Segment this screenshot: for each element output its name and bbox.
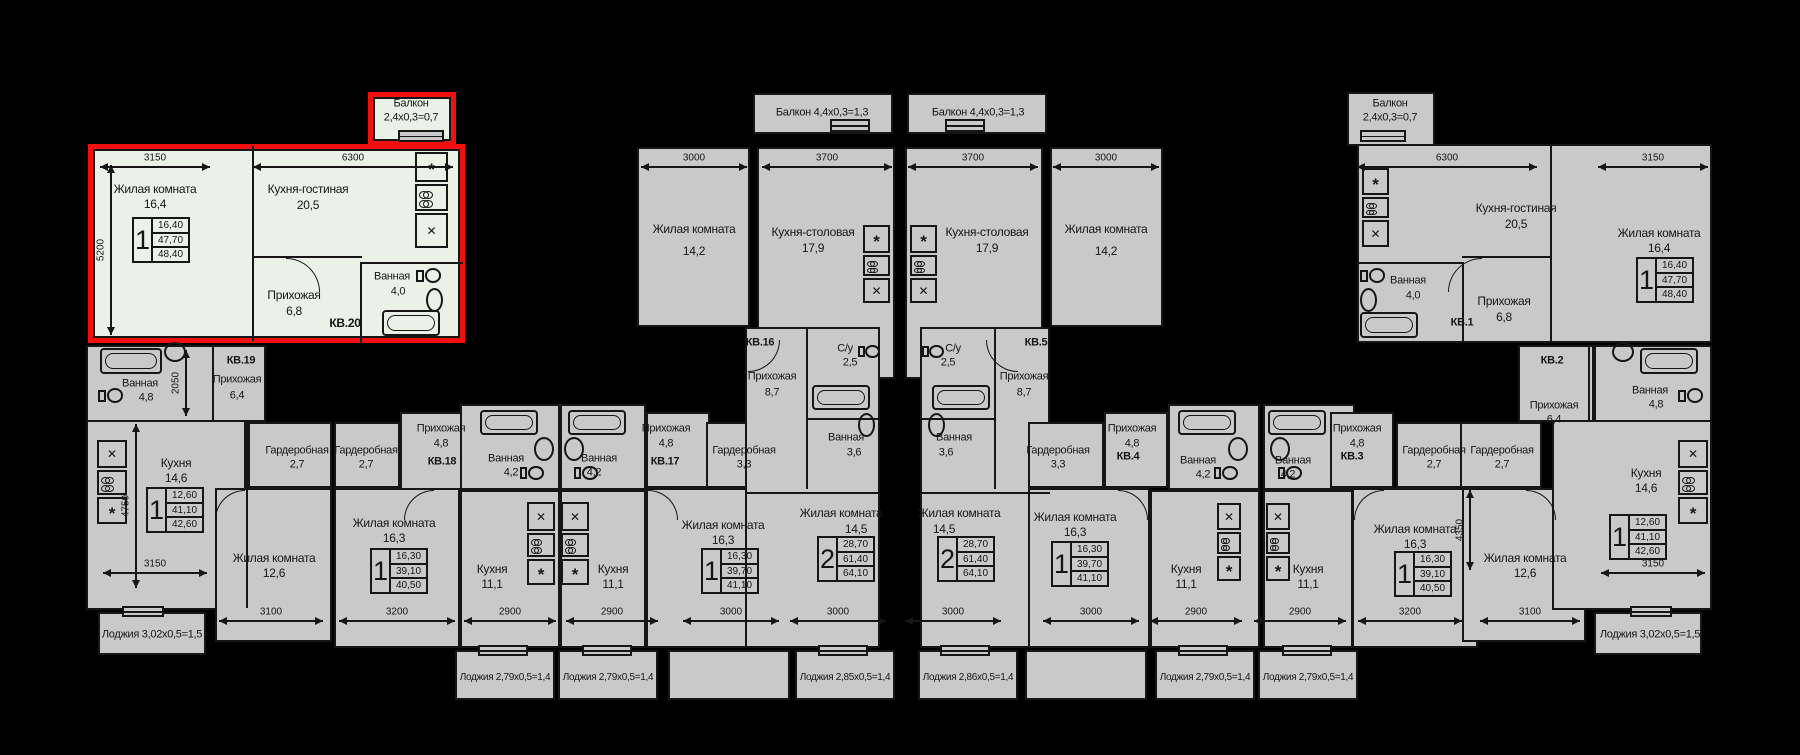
stove-icon xyxy=(561,533,589,557)
dimension-label: 6300 xyxy=(1436,153,1458,164)
toilet-tank xyxy=(1214,467,1221,478)
room-label: Кухня-гостиная xyxy=(1476,202,1557,214)
loggia-label: Лоджия 2,79х0,5=1,4 xyxy=(460,673,551,683)
bathtub-icon xyxy=(812,385,870,410)
room-label: 2,7 xyxy=(1427,460,1441,471)
room-label: 11,1 xyxy=(602,578,623,590)
toilet-tank xyxy=(922,346,929,356)
area-value: 41,10 xyxy=(1072,570,1107,585)
area-value: 41,10 xyxy=(167,502,202,517)
apartment-info-table: 228,7061,4064,10 xyxy=(937,536,995,582)
dimension-line xyxy=(1598,166,1708,168)
dimension-label: 3000 xyxy=(683,153,705,164)
room-label: Ванная xyxy=(828,433,864,444)
floor-plan-canvas: *✕✕*✕*✕**✕*✕✕*✕*✕**✕116,4047,7048,40112,… xyxy=(0,0,1800,755)
entrance-left xyxy=(668,650,790,700)
dimension-line xyxy=(1053,166,1159,168)
dimension-line xyxy=(464,620,556,622)
stove-icon xyxy=(1217,532,1241,554)
area-value: 42,60 xyxy=(1630,543,1665,558)
toilet-bowl xyxy=(1369,268,1386,283)
dimension-line xyxy=(219,620,323,622)
area-rows: 28,7061,4064,10 xyxy=(958,538,993,580)
room-count: 1 xyxy=(1053,543,1072,585)
apartment-number-label[interactable]: КВ.16 xyxy=(746,338,774,349)
room-count: 1 xyxy=(1611,516,1630,558)
dimension-label: 3150 xyxy=(144,559,166,570)
room-count: 2 xyxy=(819,538,838,580)
balcony-label: Балкон xyxy=(1372,99,1407,110)
bathtub-icon xyxy=(382,310,440,336)
washbasin-icon xyxy=(1360,288,1377,312)
toilet-bowl xyxy=(865,345,879,358)
dimension-line xyxy=(103,572,207,574)
room-label: 4,2 xyxy=(1196,470,1210,481)
kv4-kitchen xyxy=(1150,490,1260,648)
room-label: Ванная xyxy=(374,272,410,283)
room-label: Кухня xyxy=(1293,563,1324,575)
apartment-number-label[interactable]: КВ.20 xyxy=(329,317,360,329)
dimension-arrowhead xyxy=(107,165,115,173)
room-label: Кухня xyxy=(598,563,629,575)
room-label: Кухня-столовая xyxy=(946,226,1029,238)
room-label: 3,3 xyxy=(1051,460,1065,471)
wall-line xyxy=(922,492,1050,494)
dimension-line xyxy=(908,166,1038,168)
dimension-line xyxy=(110,165,112,335)
dimension-label: 2900 xyxy=(499,607,521,618)
area-value: 42,60 xyxy=(167,516,202,531)
dimension-line xyxy=(339,620,455,622)
apartment-number-label[interactable]: КВ.17 xyxy=(651,457,679,468)
window-icon xyxy=(830,119,870,132)
dimension-arrowhead xyxy=(650,617,658,625)
area-rows: 16,3039,7041,10 xyxy=(1072,543,1107,585)
dimension-label: 5200 xyxy=(96,239,107,261)
area-value: 47,70 xyxy=(153,232,188,247)
washbasin-icon xyxy=(534,437,554,461)
room-count: 2 xyxy=(939,538,958,580)
dimension-arrowhead xyxy=(445,163,453,171)
window-icon xyxy=(1282,645,1332,656)
loggia-label: Лоджия 2,79х0,5=1,4 xyxy=(1160,673,1251,683)
room-label: 17,9 xyxy=(976,242,998,254)
wall-line xyxy=(252,146,254,341)
toilet-tank xyxy=(858,346,865,356)
toilet-bowl xyxy=(107,388,124,403)
room-label: 6,8 xyxy=(286,305,302,317)
area-rows: 28,7061,4064,10 xyxy=(838,538,873,580)
room-label: Прихожая xyxy=(1000,372,1049,383)
area-rows: 12,6041,1042,60 xyxy=(1630,516,1665,558)
bathtub-icon xyxy=(1268,410,1326,435)
kitchen-sink-icon: ✕ xyxy=(561,502,589,531)
stove-icon xyxy=(1678,470,1708,495)
room-label: 12,6 xyxy=(1514,567,1536,579)
apartment-info-table: 112,6041,1042,60 xyxy=(146,487,204,533)
toilet-icon xyxy=(1360,268,1386,283)
dimension-label: 3700 xyxy=(816,153,838,164)
dimension-label: 4750 xyxy=(121,495,132,517)
wall-line xyxy=(252,256,362,258)
dimension-arrowhead xyxy=(1700,163,1708,171)
area-value: 39,10 xyxy=(391,563,426,578)
dimension-arrowhead xyxy=(107,327,115,335)
stove-burner xyxy=(568,539,576,546)
dimension-line xyxy=(1357,166,1537,168)
wall-line xyxy=(246,422,248,608)
dimension-arrowhead xyxy=(683,617,691,625)
apartment-number-label[interactable]: КВ.19 xyxy=(227,356,255,367)
apartment-info-table: 116,3039,1040,50 xyxy=(1394,551,1452,597)
dimension-arrowhead xyxy=(762,163,770,171)
window-line xyxy=(820,650,866,652)
area-value: 64,10 xyxy=(838,565,873,580)
bathtub-inner xyxy=(387,315,435,331)
kv5-bedroom xyxy=(1050,147,1163,327)
apartment-info-table: 116,3039,7041,10 xyxy=(1051,541,1109,587)
room-label: 6,4 xyxy=(230,391,244,402)
dimension-arrowhead xyxy=(908,163,916,171)
dimension-arrowhead xyxy=(339,617,347,625)
dimension-arrowhead xyxy=(905,617,913,625)
dimension-arrowhead xyxy=(1358,617,1366,625)
dimension-arrowhead xyxy=(1466,490,1474,498)
stove-burner xyxy=(917,268,925,274)
dimension-arrowhead xyxy=(548,617,556,625)
balcony-label: Балкон 4,4х0,3=1,3 xyxy=(776,108,868,119)
stove-icon xyxy=(910,255,937,276)
room-label: Ванная xyxy=(122,379,158,390)
sink-glyph: ✕ xyxy=(1273,511,1283,523)
kitchen-sink-icon: ✕ xyxy=(1678,440,1708,468)
room-label: 4,8 xyxy=(139,393,153,404)
area-rows: 16,4047,7048,40 xyxy=(1657,259,1692,301)
room-label: Кухня xyxy=(161,457,192,469)
dimension-line xyxy=(1150,620,1242,622)
dimension-arrowhead xyxy=(1357,163,1365,171)
fridge-icon: * xyxy=(1362,168,1389,195)
stove-icon xyxy=(415,184,448,211)
room-count: 1 xyxy=(1638,259,1657,301)
room-count: 1 xyxy=(703,550,722,592)
bathtub-inner xyxy=(573,415,621,430)
dimension-arrowhead xyxy=(1043,617,1051,625)
room-label: 16,3 xyxy=(1404,538,1426,550)
window-icon xyxy=(818,645,868,656)
wall-line xyxy=(1550,146,1552,341)
dimension-arrowhead xyxy=(1601,569,1609,577)
sink-glyph: ✕ xyxy=(570,511,580,523)
kitchen-sink-icon: ✕ xyxy=(415,213,448,248)
room-label: 11,1 xyxy=(481,578,502,590)
dimension-label: 3700 xyxy=(962,153,984,164)
window-line xyxy=(124,611,162,613)
dimension-arrowhead xyxy=(103,569,111,577)
dimension-arrowhead xyxy=(132,580,140,588)
area-value: 41,10 xyxy=(1630,529,1665,544)
room-label: 14,2 xyxy=(1095,245,1117,257)
area-value: 12,60 xyxy=(167,489,202,502)
room-label: Прихожая xyxy=(642,424,691,435)
area-value: 41,10 xyxy=(722,577,757,592)
area-value: 47,70 xyxy=(1657,272,1692,287)
sink-glyph: ✕ xyxy=(1224,511,1234,523)
wall-line xyxy=(360,262,463,264)
window-line xyxy=(584,650,630,652)
apartment-info-table: 116,3039,1040,50 xyxy=(370,548,428,594)
dimension-arrowhead xyxy=(182,408,190,416)
room-label: Гардеробная xyxy=(334,446,397,457)
area-value: 61,40 xyxy=(838,551,873,566)
room-label: Ванная xyxy=(936,433,972,444)
room-label: Жилая комната xyxy=(1618,227,1701,239)
dimension-label: 3150 xyxy=(144,153,166,164)
window-icon xyxy=(945,119,985,132)
toilet-bowl xyxy=(1687,388,1704,403)
toilet-icon xyxy=(416,268,442,283)
dimension-label: 3200 xyxy=(386,607,408,618)
bathtub-icon xyxy=(480,410,538,435)
dimension-arrowhead xyxy=(1529,163,1537,171)
window-icon xyxy=(122,606,164,617)
dimension-line xyxy=(762,166,892,168)
dimension-line xyxy=(1469,490,1471,570)
kitchen-sink-icon: ✕ xyxy=(97,440,127,468)
area-value: 48,40 xyxy=(1657,286,1692,301)
stove-icon xyxy=(1362,197,1389,218)
room-label: 14,2 xyxy=(683,245,705,257)
room-label: Жилая комната xyxy=(114,183,197,195)
stove-burner xyxy=(1369,203,1377,209)
dimension-arrowhead xyxy=(182,350,190,358)
room-label: Прихожая xyxy=(417,424,466,435)
room-count: 1 xyxy=(134,219,153,261)
dimension-label: 2900 xyxy=(601,607,623,618)
fridge-icon: * xyxy=(863,225,890,253)
area-value: 28,70 xyxy=(958,538,993,551)
room-label: 14,6 xyxy=(1635,482,1657,494)
dimension-line xyxy=(790,620,886,622)
room-label: 3,6 xyxy=(847,448,861,459)
apartment-number-label[interactable]: КВ.1 xyxy=(1451,318,1474,329)
apartment-number-label[interactable]: КВ.5 xyxy=(1025,338,1048,349)
stove-burner xyxy=(1272,538,1279,544)
dimension-label: 3000 xyxy=(1095,153,1117,164)
kitchen-sink-icon: ✕ xyxy=(1266,503,1290,530)
room-label: 4,2 xyxy=(587,468,601,479)
room-label: 2,5 xyxy=(941,358,955,369)
kv16-bedroom xyxy=(637,147,750,327)
area-value: 16,30 xyxy=(1072,543,1107,556)
dimension-line xyxy=(253,166,453,168)
bathtub-inner xyxy=(485,415,533,430)
room-label: Прихожая xyxy=(1333,424,1382,435)
dimension-arrowhead xyxy=(1254,617,1262,625)
apartment-info-table: 228,7061,4064,10 xyxy=(817,536,875,582)
dimension-arrowhead xyxy=(315,617,323,625)
sink-glyph: ✕ xyxy=(871,285,881,297)
toilet-bowl xyxy=(528,466,543,480)
room-label: 20,5 xyxy=(297,199,319,211)
room-label: 2,5 xyxy=(843,358,857,369)
stove-icon xyxy=(527,533,555,557)
room-label: Прихожая xyxy=(267,289,320,301)
stove-burner xyxy=(870,268,878,274)
window-line xyxy=(1632,611,1670,613)
fridge-icon: * xyxy=(1266,556,1290,581)
kitchen-sink-icon: ✕ xyxy=(1217,503,1241,530)
window-icon xyxy=(582,645,632,656)
sink-glyph: ✕ xyxy=(918,285,928,297)
room-label: 2,4х0,3=0,7 xyxy=(1363,113,1418,124)
room-label: Жилая комната xyxy=(1484,552,1567,564)
room-label: 2,7 xyxy=(1495,460,1509,471)
window-line xyxy=(480,650,526,652)
stove-burner xyxy=(423,191,433,199)
fridge-icon: * xyxy=(1678,497,1708,524)
room-label: Жилая комната xyxy=(918,507,1001,519)
fridge-icon: * xyxy=(1217,556,1241,581)
dimension-line xyxy=(1480,620,1580,622)
apartment-info-table: 116,4047,7048,40 xyxy=(1636,257,1694,303)
bathtub-icon xyxy=(100,348,162,374)
room-label: 12,6 xyxy=(263,567,285,579)
toilet-icon xyxy=(1678,388,1704,403)
apartment-number-label[interactable]: КВ.18 xyxy=(428,457,456,468)
dimension-arrowhead xyxy=(790,617,798,625)
dimension-label: 2900 xyxy=(1289,607,1311,618)
room-label: 14,5 xyxy=(845,523,867,535)
area-value: 16,30 xyxy=(1415,553,1450,566)
stove-burner xyxy=(870,261,878,267)
window-line xyxy=(1284,650,1330,652)
room-label: 16,3 xyxy=(712,534,734,546)
sink-glyph: ✕ xyxy=(107,448,117,460)
window-icon xyxy=(1630,606,1672,617)
area-value: 16,40 xyxy=(1657,259,1692,272)
kitchen-sink-icon: ✕ xyxy=(1362,220,1389,247)
dimension-arrowhead xyxy=(1150,617,1158,625)
dimension-line xyxy=(683,620,779,622)
toilet-icon xyxy=(1214,466,1238,480)
bathtub-inner xyxy=(817,390,865,405)
apartment-number-label[interactable]: КВ.4 xyxy=(1117,452,1140,463)
wall-line xyxy=(806,329,808,489)
dimension-line xyxy=(135,424,137,588)
toilet-icon xyxy=(858,345,880,358)
area-value: 61,40 xyxy=(958,551,993,566)
dimension-label: 2900 xyxy=(1185,607,1207,618)
stove-icon xyxy=(97,470,127,495)
dimension-label: 3000 xyxy=(1080,607,1102,618)
room-label: 16,3 xyxy=(383,532,405,544)
stove-burner xyxy=(917,261,925,267)
dimension-label: 3000 xyxy=(720,607,742,618)
dimension-arrowhead xyxy=(1480,617,1488,625)
apartment-number-label[interactable]: КВ.3 xyxy=(1341,452,1364,463)
window-icon xyxy=(398,130,444,142)
room-label: Прихожая xyxy=(213,375,262,386)
washbasin-icon xyxy=(1612,342,1634,362)
area-value: 40,50 xyxy=(391,577,426,592)
window-line xyxy=(947,125,983,127)
apartment-number-label[interactable]: КВ.2 xyxy=(1541,356,1564,367)
room-label: Прихожая xyxy=(1108,424,1157,435)
dimension-arrowhead xyxy=(771,617,779,625)
room-label: Гардеробная xyxy=(712,446,775,457)
room-label: 4,8 xyxy=(434,439,448,450)
dimension-label: 3200 xyxy=(1399,607,1421,618)
area-value: 16,30 xyxy=(391,550,426,563)
room-count: 1 xyxy=(148,489,167,531)
room-label: Ванная xyxy=(581,454,617,465)
loggia-label: Лоджия 2,85х0,5=1,4 xyxy=(800,673,891,683)
loggia-label: Лоджия 3,02х0,5=1,5 xyxy=(1600,630,1700,641)
toilet-tank xyxy=(1360,270,1368,282)
dimension-arrowhead xyxy=(1053,163,1061,171)
room-label: Жилая комната xyxy=(1034,511,1117,523)
room-label: Жилая комната xyxy=(800,507,883,519)
dimension-arrowhead xyxy=(878,617,886,625)
balcony-label: Балкон 4,4х0,3=1,3 xyxy=(932,108,1024,119)
dimension-arrowhead xyxy=(1131,617,1139,625)
dimension-line xyxy=(1601,572,1705,574)
washbasin-icon xyxy=(426,288,443,312)
room-label: 4,8 xyxy=(1649,400,1663,411)
room-label: Гардеробная xyxy=(1026,446,1089,457)
sink-glyph: ✕ xyxy=(1688,448,1698,460)
dimension-line xyxy=(185,350,187,416)
room-label: 4,8 xyxy=(1350,439,1364,450)
toilet-icon xyxy=(520,466,544,480)
dimension-arrowhead xyxy=(1338,617,1346,625)
bathtub-inner xyxy=(937,390,985,405)
window-line xyxy=(942,650,988,652)
room-label: Кухня xyxy=(477,563,508,575)
stove-icon xyxy=(863,255,890,276)
area-value: 16,40 xyxy=(153,219,188,232)
dimension-arrowhead xyxy=(1598,163,1606,171)
bathtub-inner xyxy=(1645,353,1693,369)
area-value: 12,60 xyxy=(1630,516,1665,529)
wall-line xyxy=(747,492,878,494)
room-label: Гардеробная xyxy=(265,446,328,457)
dimension-arrowhead xyxy=(132,424,140,432)
apartment-info-table: 116,3039,7041,10 xyxy=(701,548,759,594)
area-value: 39,70 xyxy=(1072,556,1107,571)
dimension-arrowhead xyxy=(1234,617,1242,625)
dimension-label: 3150 xyxy=(1642,559,1664,570)
window-line xyxy=(400,136,442,138)
dimension-arrowhead xyxy=(219,617,227,625)
dimension-arrowhead xyxy=(202,163,210,171)
room-label: Жилая комната xyxy=(1374,523,1457,535)
room-label: 8,7 xyxy=(765,388,779,399)
window-line xyxy=(832,125,868,127)
loggia-label: Лоджия 2,79х0,5=1,4 xyxy=(1263,673,1354,683)
room-label: Кухня xyxy=(1631,467,1662,479)
bathtub-icon xyxy=(1178,410,1236,435)
room-label: Жилая комната xyxy=(1065,223,1148,235)
room-label: Кухня xyxy=(1171,563,1202,575)
dimension-line xyxy=(1043,620,1139,622)
window-icon xyxy=(940,645,990,656)
room-label: 4,0 xyxy=(391,287,405,298)
room-label: 2,7 xyxy=(359,460,373,471)
area-rows: 16,3039,1040,50 xyxy=(391,550,426,592)
stove-burner xyxy=(1686,477,1695,484)
